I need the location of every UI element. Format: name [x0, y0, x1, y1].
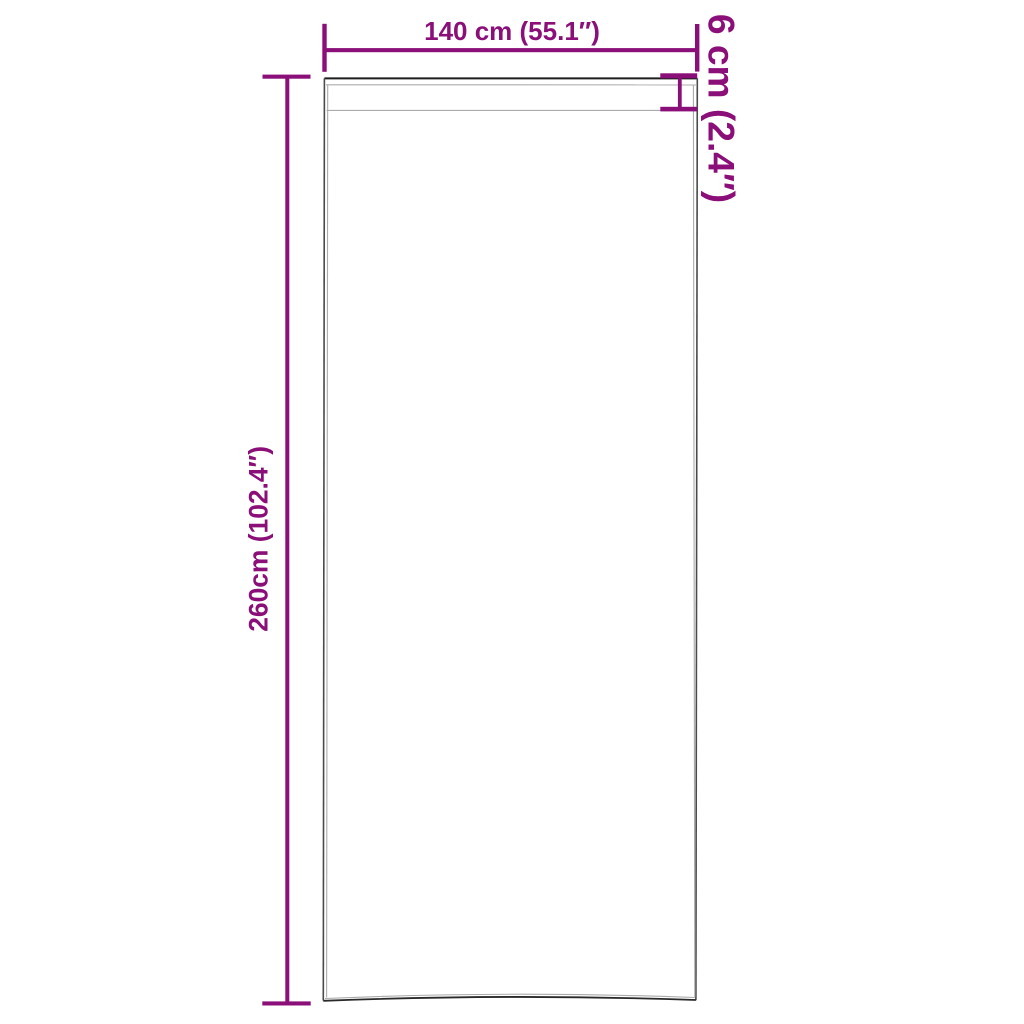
svg-text:140 cm (55.1″): 140 cm (55.1″) [424, 16, 600, 46]
svg-text:6 cm (2.4″): 6 cm (2.4″) [700, 14, 742, 203]
svg-text:260cm (102.4″): 260cm (102.4″) [243, 446, 273, 632]
